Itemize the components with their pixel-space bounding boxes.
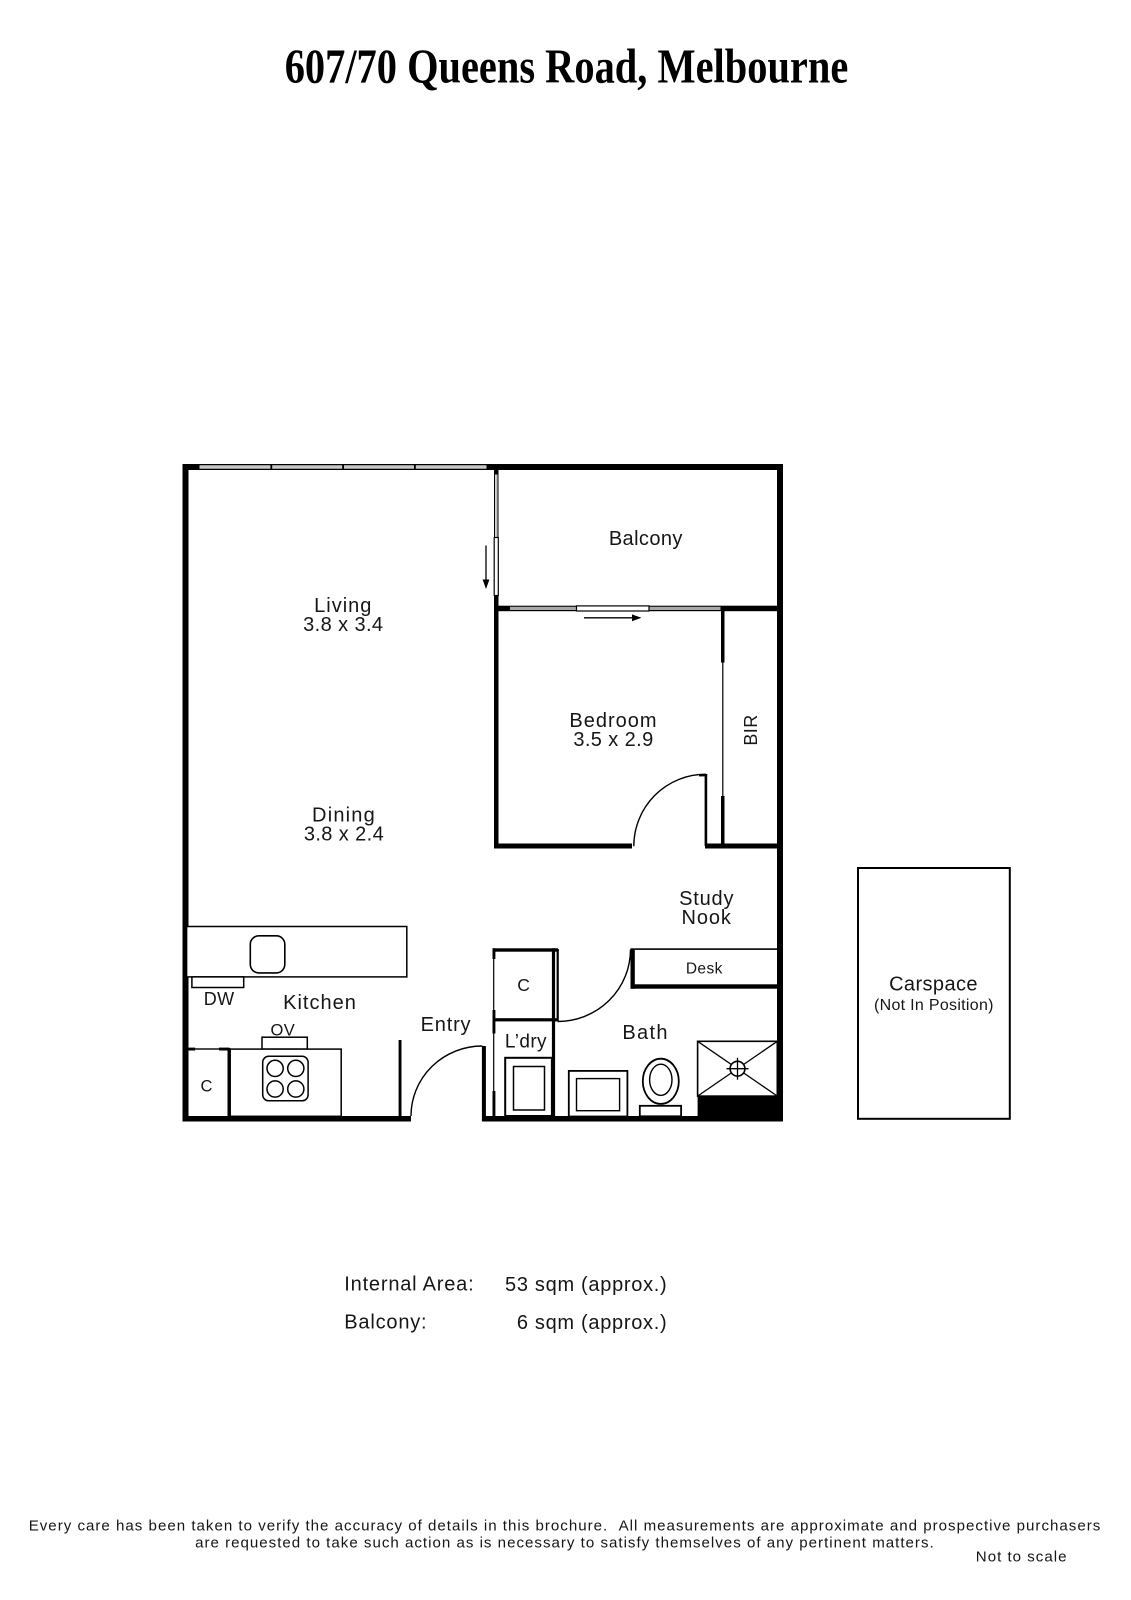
svg-text:C: C (517, 975, 530, 995)
svg-text:DW: DW (204, 989, 235, 1009)
svg-text:C: C (201, 1077, 213, 1095)
svg-text:Entry: Entry (421, 1014, 472, 1036)
svg-text:607/70 Queens Road, Melbourne: 607/70 Queens Road, Melbourne (285, 39, 849, 94)
svg-text:Every care has been taken to v: Every care has been taken to verify the … (29, 1517, 1102, 1534)
svg-text:L’dry: L’dry (505, 1031, 547, 1052)
svg-text:are requested to take such act: are requested to take such action as is … (195, 1535, 935, 1552)
svg-text:(Not In Position): (Not In Position) (874, 997, 994, 1014)
svg-text:BIR: BIR (741, 714, 761, 745)
svg-text:6 sqm (approx.): 6 sqm (approx.) (517, 1312, 668, 1334)
svg-text:3.5 x 2.9: 3.5 x 2.9 (573, 729, 653, 751)
svg-text:53 sqm (approx.): 53 sqm (approx.) (505, 1274, 667, 1296)
svg-text:Internal Area:: Internal Area: (344, 1274, 474, 1296)
svg-text:3.8 x 2.4: 3.8 x 2.4 (304, 824, 384, 846)
svg-text:Desk: Desk (686, 961, 723, 978)
svg-text:Nook: Nook (682, 907, 732, 929)
svg-text:Not to scale: Not to scale (976, 1548, 1068, 1565)
svg-text:Balcony: Balcony (609, 528, 683, 550)
svg-text:3.8 x 3.4: 3.8 x 3.4 (303, 614, 383, 636)
svg-text:Kitchen: Kitchen (283, 992, 357, 1014)
svg-text:Bath: Bath (622, 1022, 668, 1044)
svg-text:Balcony:: Balcony: (344, 1312, 427, 1334)
svg-text:Carspace: Carspace (889, 973, 978, 995)
